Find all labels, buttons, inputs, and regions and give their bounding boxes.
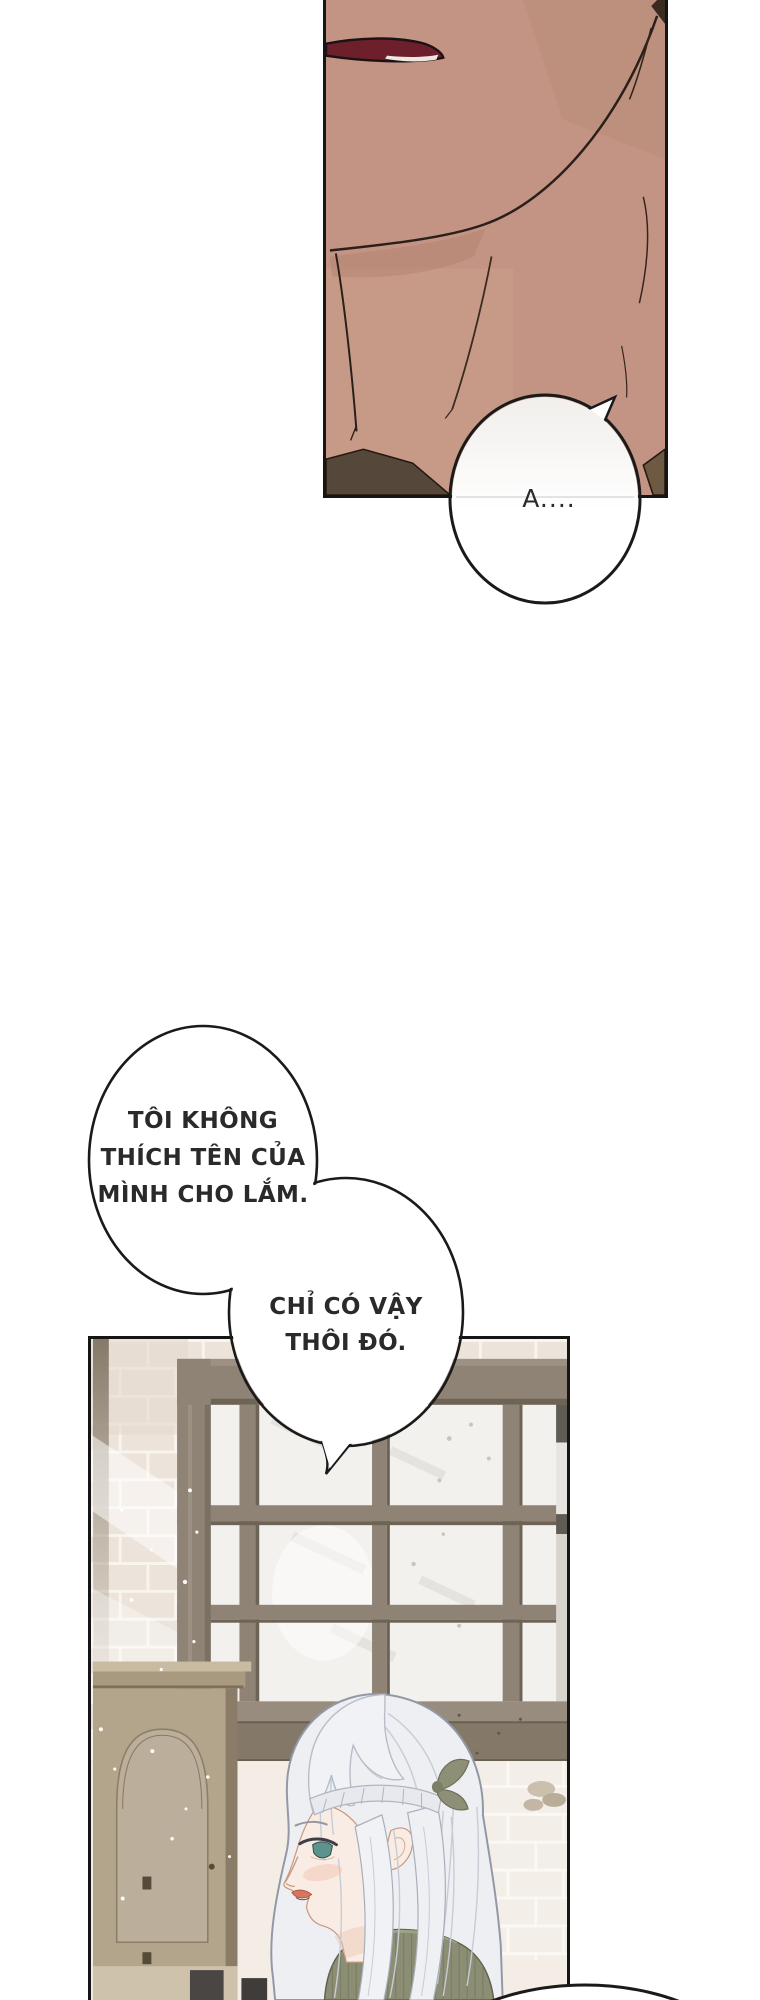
room-art [91, 1339, 567, 2000]
comic-page: A.... TÔI KHÔNG THÍCH TÊN CỦA MÌNH CHO L… [0, 0, 760, 2000]
bubble-2-line: CHỈ CÓ VẬY [229, 1289, 463, 1325]
arch-glass-door [117, 1729, 208, 1942]
chair-back [190, 1970, 224, 2000]
bubble-a-text: A.... [460, 484, 638, 513]
panel-closeup [323, 0, 668, 498]
bubble-1-line: MÌNH CHO LẮM. [89, 1177, 317, 1214]
bubble-2-line: THÔI ĐÓ. [229, 1325, 463, 1361]
bubble-1-line: THÍCH TÊN CỦA [89, 1140, 317, 1177]
closeup-art [326, 0, 665, 495]
bubble-2-text: CHỈ CÓ VẬY THÔI ĐÓ. [229, 1289, 463, 1361]
iris [313, 1842, 333, 1858]
bubble-1-line: TÔI KHÔNG [89, 1103, 317, 1140]
cabinet [93, 1662, 251, 2000]
chair-back [241, 1978, 267, 2000]
panel-room [88, 1336, 570, 2000]
bubble-1-text: TÔI KHÔNG THÍCH TÊN CỦA MÌNH CHO LẮM. [89, 1103, 317, 1214]
